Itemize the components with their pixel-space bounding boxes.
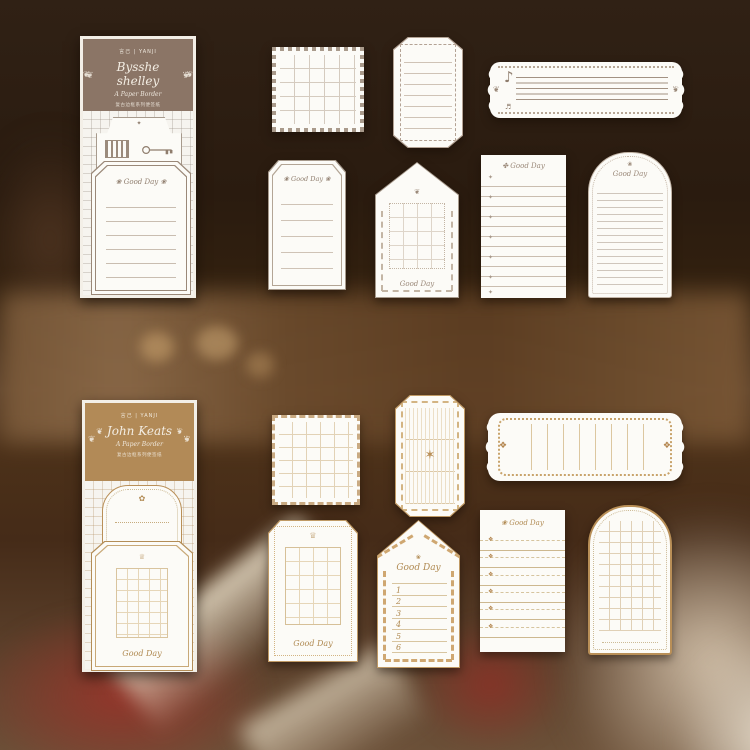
- fleur-icon: ❖: [488, 606, 493, 612]
- note-house-grid: ❦ Good Day: [375, 162, 459, 298]
- grid-ruling: [279, 422, 353, 498]
- note-arch-grid: [588, 505, 672, 655]
- note-label-columns: ❖ ❖: [488, 413, 682, 481]
- ruled-lines: [481, 177, 566, 294]
- note-ruled-stars: ❀ Good Day ❖ ❖ ❖ ❖ ❖ ❖: [480, 510, 565, 652]
- note-square-stamp-grid: [272, 47, 364, 132]
- blossom-icon: ✿: [139, 495, 146, 503]
- list-number: 2: [396, 597, 401, 606]
- list-number: 4: [396, 620, 401, 629]
- package-title-row: ❦ Bysshe shelley ❦: [83, 60, 193, 88]
- fleur-icon: ❖: [488, 589, 493, 595]
- grid-box: [116, 568, 168, 638]
- list-item: 5: [392, 630, 447, 642]
- fleuron-icon: ❦: [493, 86, 500, 94]
- brand-logo: 言己 | YANJI: [83, 39, 193, 55]
- diamond-icon: ✦: [488, 290, 493, 296]
- memo-pad-package-john-keats: 言己 | YANJI ❦ John Keats ❦ A Paper Border…: [82, 400, 197, 672]
- flourish-icon: ❦: [182, 71, 190, 81]
- ruled-lines: [597, 187, 663, 288]
- ruled-lines: [404, 52, 452, 135]
- list-row: ❖: [480, 627, 565, 644]
- fleur-icon: ❖: [663, 442, 671, 451]
- note-octagon-ruled: [393, 37, 463, 148]
- grid-box: [285, 547, 341, 625]
- note-ruled-diamonds: ✤ Good Day ✦ ✦ ✦ ✦ ✦ ✦ ✦: [481, 155, 566, 298]
- fleur-icon: ❖: [488, 572, 493, 578]
- flower-icon: ❀: [627, 162, 632, 168]
- note-tag-ruled: ❀ Good Day ❀: [268, 160, 346, 290]
- label-scallop-end: [479, 418, 493, 476]
- dotted-line: [115, 522, 169, 523]
- crest-icon: ❦: [414, 189, 420, 196]
- ruled-lines: ❖ ❖ ❖ ❖ ❖ ❖: [480, 540, 565, 644]
- product-photo: 言己 | YANJI ❦ Bysshe shelley ❦ A Paper Bo…: [0, 0, 750, 750]
- leaf-border: [376, 534, 414, 558]
- list-item: 6: [392, 642, 447, 654]
- fleur-icon: ❖: [488, 624, 493, 630]
- list-item: 2: [392, 596, 447, 608]
- finial-icon: ✦: [136, 121, 141, 127]
- crown-icon: ♕: [309, 532, 316, 540]
- bokeh-light: [140, 332, 174, 362]
- ruled-lines: [106, 194, 176, 280]
- list-number: 1: [396, 586, 401, 595]
- flourish-icon: ❦: [88, 435, 96, 445]
- note-tag-grid: ♕ Good Day: [268, 520, 358, 662]
- list-item: 4: [392, 619, 447, 631]
- package-title-row: ❦ John Keats ❦: [85, 424, 194, 438]
- tag-heading: Good Day: [378, 563, 459, 573]
- grid-box: [389, 203, 445, 269]
- note-heading: Good Day: [589, 170, 671, 178]
- music-notes-icon: ♬: [505, 104, 511, 111]
- diamond-icon: ✦: [488, 275, 493, 281]
- key-icon: [141, 144, 175, 156]
- tag-heading: ❀ Good Day ❀: [273, 175, 341, 183]
- bokeh-light: [196, 326, 238, 360]
- label-scallop-end: [677, 418, 691, 476]
- tick-border: [382, 290, 452, 292]
- diamond-icon: ✦: [488, 235, 493, 241]
- grid-paper-pad: ✿ ♕ Good Day: [85, 481, 194, 669]
- treble-clef-icon: ♪: [504, 70, 514, 85]
- crown-icon: ♕: [139, 554, 145, 561]
- stripe-block: [105, 140, 129, 158]
- package-title: Bysshe shelley: [94, 60, 183, 88]
- diamond-icon: ✦: [488, 255, 493, 261]
- flourish-icon: ❦: [96, 427, 103, 436]
- dotted-line: [602, 642, 658, 643]
- list-item: 1: [392, 583, 447, 596]
- printed-grid-tag: ♕ Good Day: [91, 541, 193, 671]
- leaf-border: [451, 571, 454, 660]
- flourish-icon: ❦: [86, 71, 94, 81]
- package-caption: 复古边框系列便签纸: [83, 102, 193, 108]
- flower-icon: ❀: [416, 555, 421, 561]
- leaf-border: [423, 534, 461, 558]
- fleur-icon: ❖: [499, 442, 507, 451]
- package-header: 言己 | YANJI ❦ John Keats ❦ A Paper Border…: [85, 403, 194, 481]
- star-icon: ✶: [425, 449, 436, 462]
- flourish-icon: ❦: [176, 427, 183, 436]
- package-header: 言己 | YANJI ❦ Bysshe shelley ❦ A Paper Bo…: [83, 39, 193, 111]
- fleuron-icon: ❦: [672, 86, 679, 94]
- tag-heading: Good Day: [376, 280, 458, 288]
- printed-goodday-tag: ❀ Good Day ❀: [91, 161, 191, 295]
- list-number: 5: [396, 632, 401, 641]
- tag-heading: Good Day: [96, 649, 188, 658]
- note-octagon-star: ✶: [395, 395, 465, 517]
- ruled-lines: [281, 189, 333, 275]
- flourish-icon: ❦: [183, 435, 191, 445]
- note-heading: ❀ Good Day: [480, 519, 565, 527]
- fleur-icon: ❖: [488, 537, 493, 543]
- leaf-border: [385, 659, 452, 662]
- bokeh-light: [246, 352, 274, 378]
- note-label-music: ♪ ♬ ❦ ❦: [490, 62, 682, 118]
- package-title: John Keats: [107, 424, 172, 438]
- leaf-border: [383, 571, 386, 660]
- music-staff: [516, 77, 668, 100]
- diamond-icon: ✦: [488, 195, 493, 201]
- label-scallop-end: [677, 67, 691, 113]
- grid-paper-pad: ✦ ❀ Good Day ❀: [83, 111, 193, 295]
- list-number: 3: [396, 609, 401, 618]
- grid-ruling: [599, 521, 661, 631]
- list-number: 6: [396, 643, 401, 652]
- note-heading: ✤ Good Day: [481, 162, 566, 170]
- list-item: 3: [392, 607, 447, 619]
- memo-pad-package-bysshe-shelley: 言己 | YANJI ❦ Bysshe shelley ❦ A Paper Bo…: [80, 36, 196, 298]
- package-caption: 复古边框系列便签纸: [85, 452, 194, 458]
- note-house-numbered: ❀ Good Day 1 2 3 4 5 6: [377, 520, 460, 668]
- tag-heading: Good Day: [269, 639, 357, 648]
- brand-logo: 言己 | YANJI: [85, 403, 194, 419]
- column-ruling: [516, 424, 654, 470]
- grid-ruling: [280, 55, 356, 124]
- tag-heading: ❀ Good Day ❀: [96, 178, 186, 186]
- numbered-list: 1 2 3 4 5 6: [392, 583, 447, 653]
- fleur-icon: ❖: [488, 554, 493, 560]
- note-square-dashed-grid: [272, 415, 360, 505]
- package-subtitle: A Paper Border: [85, 441, 194, 448]
- diamond-icon: ✦: [488, 215, 493, 221]
- note-arch-ruled: ❀ Good Day: [588, 152, 672, 298]
- diamond-icon: ✦: [488, 175, 493, 181]
- package-subtitle: A Paper Border: [83, 91, 193, 98]
